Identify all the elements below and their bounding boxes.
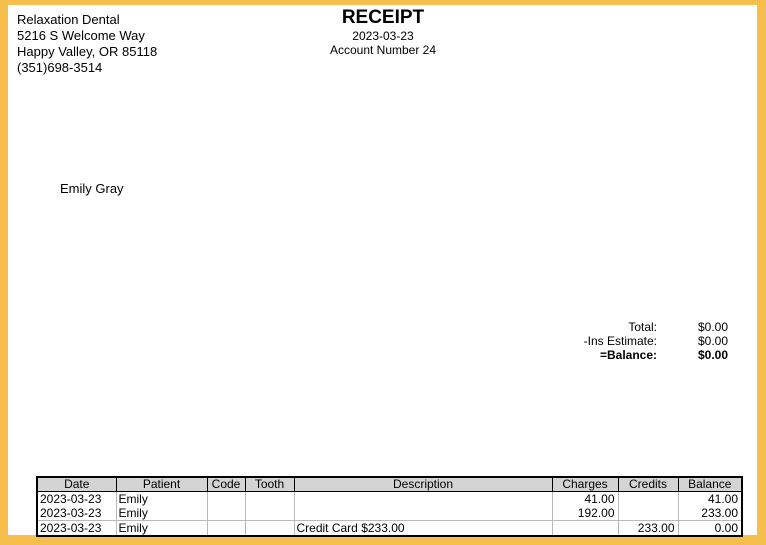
cell-balance: 41.00 bbox=[678, 492, 742, 507]
cell-patient: Emily bbox=[116, 521, 207, 537]
cell-charges: 41.00 bbox=[552, 492, 618, 507]
ins-estimate-value: $0.00 bbox=[657, 334, 728, 348]
patient-name: Emily Gray bbox=[60, 181, 124, 196]
cell-code bbox=[207, 506, 245, 521]
ins-estimate-label: -Ins Estimate: bbox=[584, 334, 657, 348]
table-header-row: Date Patient Code Tooth Description Char… bbox=[37, 477, 742, 492]
balance-label: =Balance: bbox=[600, 348, 657, 362]
receipt-page: Relaxation Dental 5216 S Welcome Way Hap… bbox=[0, 0, 766, 545]
cell-charges: 192.00 bbox=[552, 506, 618, 521]
col-header-balance: Balance bbox=[678, 477, 742, 492]
cell-credits bbox=[618, 492, 678, 507]
table-row: 2023-03-23 Emily 41.00 41.00 bbox=[37, 492, 742, 507]
cell-date: 2023-03-23 bbox=[37, 492, 116, 507]
total-label: Total: bbox=[628, 320, 657, 334]
cell-code bbox=[207, 492, 245, 507]
col-header-charges: Charges bbox=[552, 477, 618, 492]
totals-row-balance: =Balance: $0.00 bbox=[584, 348, 728, 362]
table-row: 2023-03-23 Emily Credit Card $233.00 233… bbox=[37, 521, 742, 537]
receipt-title: RECEIPT bbox=[0, 7, 766, 29]
cell-date: 2023-03-23 bbox=[37, 521, 116, 537]
provider-phone: (351)698-3514 bbox=[17, 60, 157, 76]
cell-tooth bbox=[245, 492, 294, 507]
totals-row-total: Total: $0.00 bbox=[584, 320, 728, 334]
col-header-credits: Credits bbox=[618, 477, 678, 492]
cell-date: 2023-03-23 bbox=[37, 506, 116, 521]
cell-balance: 233.00 bbox=[678, 506, 742, 521]
totals-row-ins-estimate: -Ins Estimate: $0.00 bbox=[584, 334, 728, 348]
cell-description bbox=[294, 492, 552, 507]
account-number: Account Number 24 bbox=[0, 43, 766, 57]
col-header-code: Code bbox=[207, 477, 245, 492]
cell-code bbox=[207, 521, 245, 537]
cell-description bbox=[294, 506, 552, 521]
receipt-date: 2023-03-23 bbox=[0, 29, 766, 43]
cell-tooth bbox=[245, 506, 294, 521]
totals-block: Total: $0.00 -Ins Estimate: $0.00 =Balan… bbox=[584, 320, 728, 362]
total-value: $0.00 bbox=[657, 320, 728, 334]
col-header-date: Date bbox=[37, 477, 116, 492]
col-header-patient: Patient bbox=[116, 477, 207, 492]
cell-charges bbox=[552, 521, 618, 537]
cell-description: Credit Card $233.00 bbox=[294, 521, 552, 537]
table-row: 2023-03-23 Emily 192.00 233.00 bbox=[37, 506, 742, 521]
col-header-description: Description bbox=[294, 477, 552, 492]
cell-credits: 233.00 bbox=[618, 521, 678, 537]
cell-balance: 0.00 bbox=[678, 521, 742, 537]
cell-tooth bbox=[245, 521, 294, 537]
transactions-table: Date Patient Code Tooth Description Char… bbox=[36, 476, 743, 537]
cell-credits bbox=[618, 506, 678, 521]
receipt-header: RECEIPT 2023-03-23 Account Number 24 bbox=[0, 7, 766, 57]
balance-value: $0.00 bbox=[657, 348, 728, 362]
cell-patient: Emily bbox=[116, 506, 207, 521]
col-header-tooth: Tooth bbox=[245, 477, 294, 492]
page-border-frame bbox=[0, 0, 766, 545]
cell-patient: Emily bbox=[116, 492, 207, 507]
